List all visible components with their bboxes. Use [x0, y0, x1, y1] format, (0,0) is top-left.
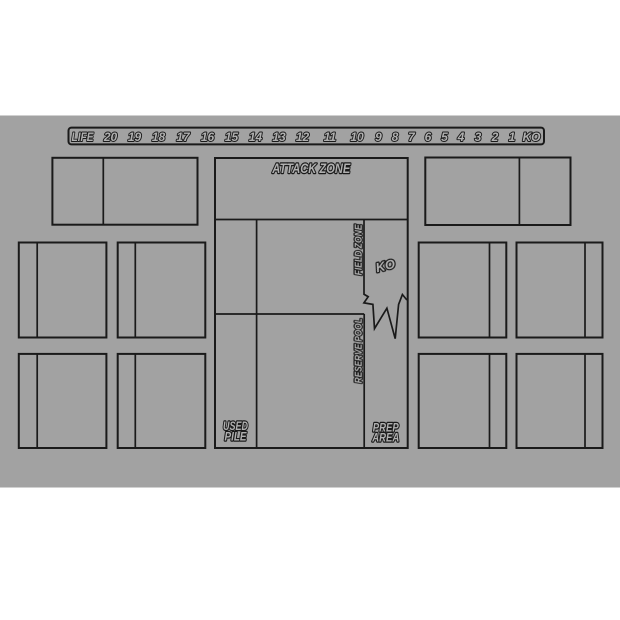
svg-text:11: 11 [324, 130, 337, 144]
svg-text:6: 6 [425, 130, 432, 144]
svg-text:8: 8 [392, 130, 399, 144]
svg-text:1: 1 [509, 130, 516, 144]
svg-text:5: 5 [441, 130, 448, 144]
svg-text:16: 16 [201, 130, 215, 144]
svg-text:19: 19 [128, 130, 142, 144]
svg-text:PILE: PILE [225, 432, 247, 444]
svg-text:9: 9 [375, 130, 382, 144]
svg-text:3: 3 [475, 130, 482, 144]
svg-text:AREA: AREA [371, 433, 399, 445]
svg-text:14: 14 [249, 130, 263, 144]
svg-text:FIELD ZONE: FIELD ZONE [353, 224, 365, 276]
svg-text:ATTACK ZONE: ATTACK ZONE [272, 160, 351, 176]
svg-text:LIFE: LIFE [72, 130, 95, 144]
svg-text:12: 12 [296, 130, 310, 144]
svg-text:17: 17 [176, 130, 191, 144]
svg-text:20: 20 [103, 130, 118, 144]
svg-text:RESERVE POOL: RESERVE POOL [353, 318, 365, 383]
svg-text:4: 4 [457, 130, 465, 144]
svg-text:2: 2 [491, 130, 499, 144]
svg-text:15: 15 [225, 130, 239, 144]
svg-text:13: 13 [272, 130, 286, 144]
svg-text:10: 10 [350, 130, 364, 144]
svg-text:18: 18 [152, 130, 166, 144]
svg-text:KO: KO [523, 130, 542, 144]
